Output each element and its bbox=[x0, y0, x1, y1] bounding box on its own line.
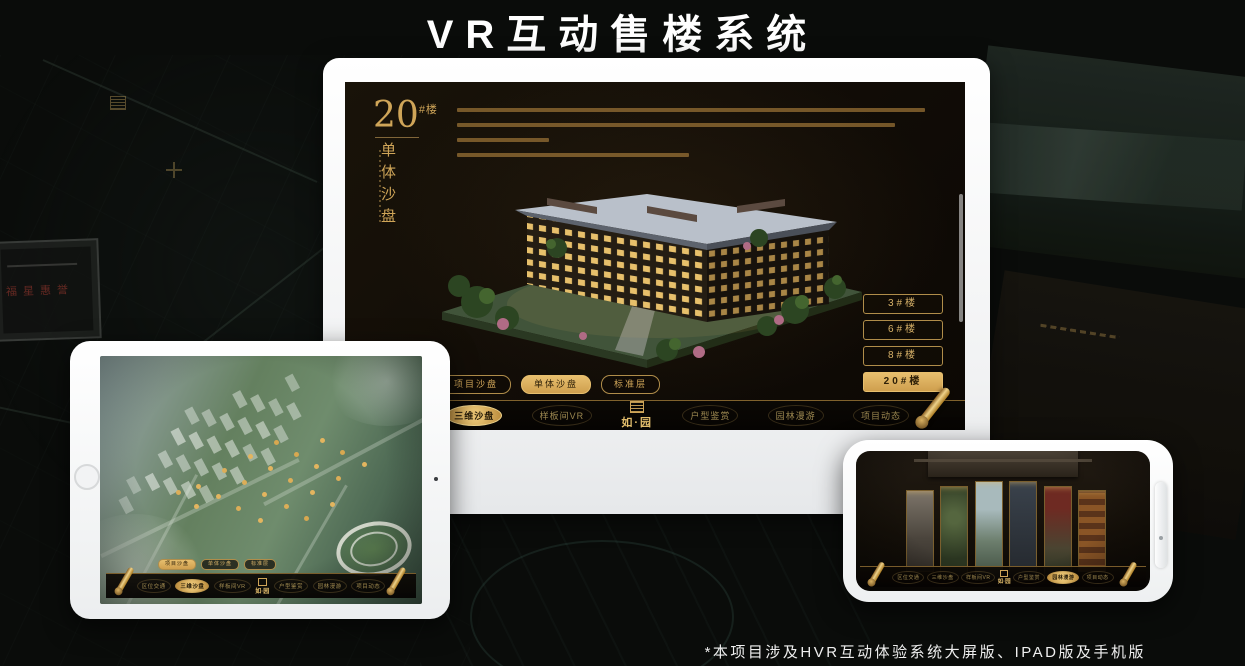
tab-project-sandtable[interactable]: 项目沙盘 bbox=[441, 375, 511, 394]
screen-scrollbar[interactable] bbox=[959, 194, 963, 322]
section-number: 20 bbox=[373, 98, 419, 134]
building-button-20[interactable]: 20#楼 bbox=[863, 372, 943, 392]
description-line bbox=[457, 138, 549, 142]
tab-single-sandtable[interactable]: 单体沙盘 bbox=[521, 375, 591, 394]
phone-screen: 区位交通 三维沙盘 样板间VR 如·园 户型鉴赏 园林漫游 项目动态 bbox=[856, 451, 1150, 591]
nav-item-project-news[interactable]: 项目动态 bbox=[853, 405, 909, 426]
brand-name: 如·园 bbox=[621, 414, 653, 430]
phone-nav-showroom-vr[interactable]: 样板间VR bbox=[961, 571, 995, 584]
footnote-caption: *本项目涉及HVR互动体验系统大屏版、IPAD版及手机版 bbox=[705, 641, 1146, 662]
tablet-brand-logo[interactable]: 如·园 bbox=[255, 578, 269, 595]
building-model-3d[interactable] bbox=[407, 154, 887, 389]
brand-logo[interactable]: 如·园 bbox=[621, 401, 653, 430]
tablet-home-button[interactable] bbox=[74, 464, 100, 490]
phone-side-capsule bbox=[1155, 482, 1167, 568]
nav-item-garden-tour[interactable]: 园林漫游 bbox=[768, 405, 824, 426]
poster-canvas: 福星惠誉 VR互动售楼系统 20#楼 单体沙盘 bbox=[0, 0, 1245, 666]
poster-title: VR互动售楼系统 bbox=[0, 2, 1245, 60]
phone-camera-icon bbox=[1159, 536, 1163, 540]
tablet-nav-showroom-vr[interactable]: 样板间VR bbox=[214, 579, 251, 593]
tablet-navbar: 区位交通 三维沙盘 样板间VR 如·园 户型鉴赏 园林漫游 项目动态 bbox=[106, 573, 416, 598]
tablet-tab-project-sandtable[interactable]: 项目沙盘 bbox=[158, 559, 196, 570]
brand-seal-icon bbox=[258, 578, 267, 586]
phone-nav-project-news[interactable]: 项目动态 bbox=[1082, 571, 1114, 584]
building-button-6[interactable]: 6#楼 bbox=[863, 320, 943, 340]
brand-seal-icon bbox=[630, 401, 644, 413]
section-unit: #楼 bbox=[419, 104, 438, 116]
plaque-brand-text: 福星惠誉 bbox=[6, 281, 75, 299]
tablet-nav-3d-sandtable[interactable]: 三维沙盘 bbox=[175, 579, 209, 593]
compass-icon bbox=[166, 162, 182, 178]
tablet-nav-project-news[interactable]: 项目动态 bbox=[351, 579, 385, 593]
building-button-8[interactable]: 8#楼 bbox=[863, 346, 943, 366]
tablet-device: 项目沙盘 单体沙盘 标准层 区位交通 三维沙盘 样板间VR 如·园 户型鉴赏 园… bbox=[70, 341, 450, 619]
tablet-camera-icon bbox=[434, 477, 438, 481]
background-river bbox=[982, 123, 1245, 211]
nav-item-showroom-vr[interactable]: 样板间VR bbox=[532, 405, 593, 426]
description-line bbox=[457, 108, 925, 112]
tablet-nav-location[interactable]: 区位交通 bbox=[137, 579, 171, 593]
phone-nav-3d-sandtable[interactable]: 三维沙盘 bbox=[927, 571, 959, 584]
tablet-tab-standard-floor[interactable]: 标准层 bbox=[244, 559, 276, 570]
tab-standard-floor[interactable]: 标准层 bbox=[601, 375, 660, 394]
building-selector-list: 3#楼 6#楼 8#楼 20#楼 bbox=[863, 294, 943, 392]
tablet-tab-single-sandtable[interactable]: 单体沙盘 bbox=[201, 559, 239, 570]
section-subtitle: 单体沙盘 bbox=[377, 142, 398, 230]
background-gold-seal bbox=[110, 96, 126, 110]
background-plaque: 福星惠誉 bbox=[0, 238, 102, 342]
phone-navbar: 区位交通 三维沙盘 样板间VR 如·园 户型鉴赏 园林漫游 项目动态 bbox=[860, 566, 1146, 587]
brand-name: 如·园 bbox=[255, 586, 269, 595]
section-rule bbox=[375, 137, 419, 138]
tablet-nav-floorplans[interactable]: 户型鉴赏 bbox=[274, 579, 308, 593]
brand-seal-icon bbox=[1000, 570, 1008, 577]
description-line bbox=[457, 123, 895, 127]
phone-nav-floorplans[interactable]: 户型鉴赏 bbox=[1013, 571, 1045, 584]
phone-nav-garden-tour[interactable]: 园林漫游 bbox=[1047, 571, 1079, 584]
plaque-small-text-bar bbox=[7, 263, 77, 267]
phone-brand-logo[interactable]: 如·园 bbox=[998, 570, 1011, 585]
brand-name: 如·园 bbox=[998, 577, 1011, 585]
tablet-sandtable-tabs: 项目沙盘 单体沙盘 标准层 bbox=[158, 559, 276, 570]
building-button-3[interactable]: 3#楼 bbox=[863, 294, 943, 314]
section-header: 20#楼 单体沙盘 bbox=[373, 98, 438, 230]
description-paragraph bbox=[457, 108, 925, 168]
phone-nav-location[interactable]: 区位交通 bbox=[892, 571, 924, 584]
sandtable-tabs: 项目沙盘 单体沙盘 标准层 bbox=[441, 375, 660, 394]
tablet-screen: 项目沙盘 单体沙盘 标准层 区位交通 三维沙盘 样板间VR 如·园 户型鉴赏 园… bbox=[100, 356, 422, 604]
description-line bbox=[457, 153, 689, 157]
nav-item-3d-sandtable[interactable]: 三维沙盘 bbox=[446, 405, 502, 426]
tablet-nav-garden-tour[interactable]: 园林漫游 bbox=[313, 579, 347, 593]
phone-device: 区位交通 三维沙盘 样板间VR 如·园 户型鉴赏 园林漫游 项目动态 bbox=[843, 440, 1173, 602]
nav-item-floorplans[interactable]: 户型鉴赏 bbox=[682, 405, 738, 426]
background-aerial-photo bbox=[964, 45, 1245, 278]
